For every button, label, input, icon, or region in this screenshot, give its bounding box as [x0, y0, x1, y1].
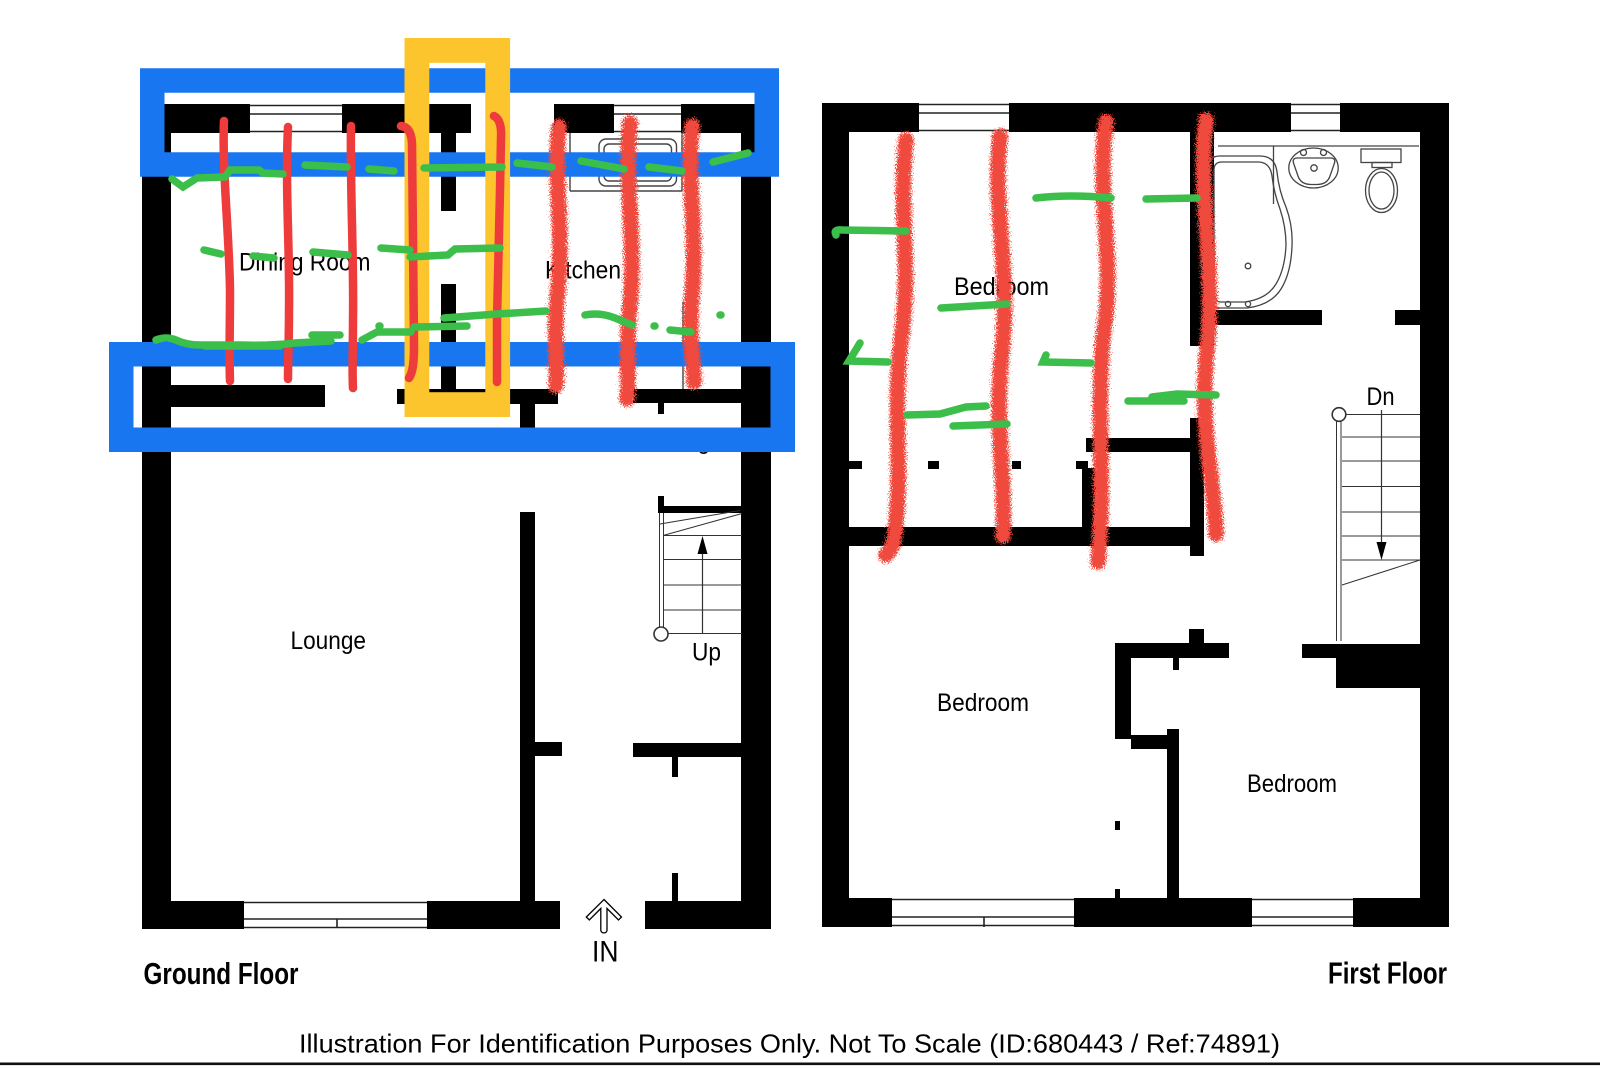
svg-text:Bedroom: Bedroom — [1247, 770, 1337, 798]
svg-text:First Floor: First Floor — [1328, 956, 1447, 991]
svg-text:Bedroom: Bedroom — [937, 689, 1029, 717]
svg-text:Ground Floor: Ground Floor — [144, 956, 299, 991]
svg-text:Lounge: Lounge — [291, 627, 367, 655]
svg-text:Illustration For Identificatio: Illustration For Identification Purposes… — [299, 1029, 1280, 1059]
svg-text:Dn: Dn — [1367, 383, 1395, 411]
svg-text:IN: IN — [592, 936, 619, 969]
svg-text:Up: Up — [692, 639, 721, 667]
